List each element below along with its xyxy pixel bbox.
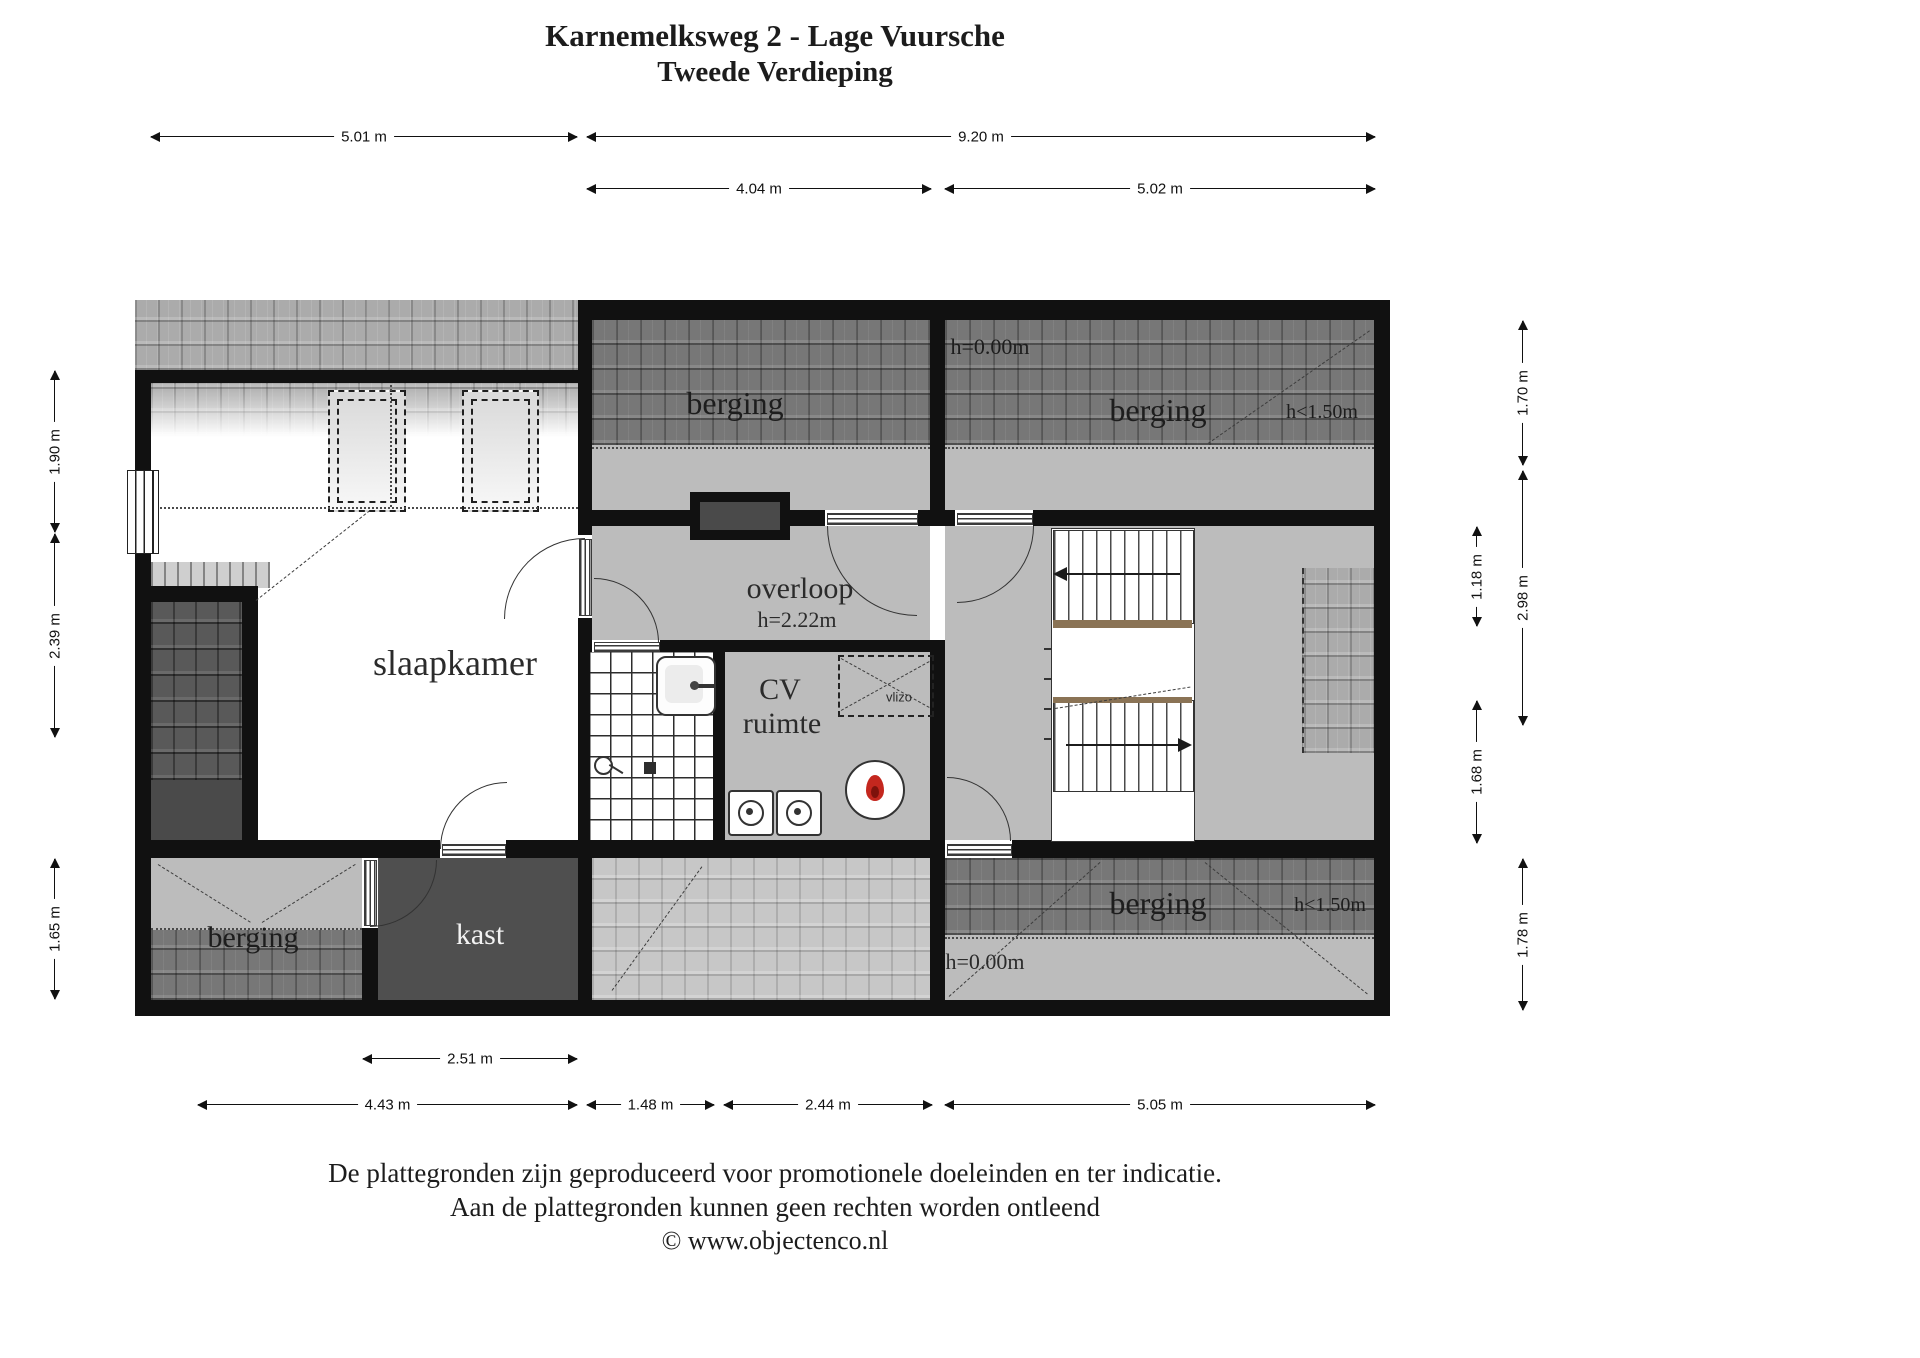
floor-berging-top-right xyxy=(945,445,1374,510)
door-leaf xyxy=(594,642,660,652)
arrow-right-icon xyxy=(922,184,932,194)
roofline-dash xyxy=(256,510,370,601)
guide-dotted-line xyxy=(390,385,392,507)
wall-berging-middle-east xyxy=(930,320,945,526)
dim-bottom-1-48: 1.48 m xyxy=(586,1098,715,1112)
dim-label: 5.05 m xyxy=(1130,1097,1190,1114)
roof-tiles-bottom-middle xyxy=(592,858,930,1000)
dim-right-1-18: 1.18 m xyxy=(1470,526,1484,627)
arrow-right-icon xyxy=(568,132,578,142)
tick-mark xyxy=(1044,678,1052,680)
stairs-lower-flight xyxy=(1053,700,1194,792)
dim-label: 1.90 m xyxy=(47,422,64,482)
room-label-kast: kast xyxy=(456,920,504,950)
vlizo-label: vlizo xyxy=(886,691,912,704)
dim-label: 5.02 m xyxy=(1130,181,1190,198)
door-leaf xyxy=(957,513,1033,525)
sink xyxy=(656,656,716,716)
height-annotation: h<1.50m xyxy=(1294,895,1366,915)
wall-outer-left xyxy=(135,370,151,1016)
door-leaf xyxy=(947,844,1012,856)
dim-right-1-78: 1.78 m xyxy=(1516,858,1530,1011)
page-title: Karnemelksweg 2 - Lage Vuursche xyxy=(0,18,1550,54)
floorplan-page: Karnemelksweg 2 - Lage Vuursche Tweede V… xyxy=(0,0,1920,1358)
footer-disclaimer-2: Aan de plattegronden kunnen geen rechten… xyxy=(0,1192,1550,1223)
arrow-right-icon xyxy=(1366,132,1376,142)
appliance-icon xyxy=(728,790,774,836)
room-label-cv: CV xyxy=(759,675,801,705)
roof-tiles-berging-middle xyxy=(592,320,930,445)
roof-tiles-right-patch xyxy=(1302,568,1376,753)
dim-label: 1.68 m xyxy=(1469,742,1486,802)
window xyxy=(127,470,159,554)
dim-label: 5.01 m xyxy=(334,129,394,146)
tick-mark xyxy=(1044,648,1052,650)
skylight-window xyxy=(328,390,406,512)
headroom-dotted-line xyxy=(592,447,930,449)
roof-tiles-left-eaves xyxy=(135,300,578,370)
dim-right-1-70: 1.70 m xyxy=(1516,320,1530,466)
dim-left-2-39: 2.39 m xyxy=(48,533,62,738)
wall-outer-bottom xyxy=(135,1000,1390,1016)
wall-south-row xyxy=(135,840,1390,858)
stairs-landing-edge xyxy=(1053,620,1192,628)
wall-stairwell-void-east xyxy=(242,586,258,840)
dim-bottom-2-44: 2.44 m xyxy=(723,1098,933,1112)
wall-outer-right xyxy=(1374,300,1390,1016)
dim-label: 1.70 m xyxy=(1515,363,1532,423)
headroom-dotted-line xyxy=(945,447,1374,449)
arrow-left-icon xyxy=(944,184,954,194)
dim-label: 9.20 m xyxy=(951,129,1011,146)
stairs-direction-line xyxy=(1066,573,1180,575)
footer-disclaimer-1: De plattegronden zijn geproduceerd voor … xyxy=(0,1158,1550,1189)
arrow-right-icon xyxy=(1366,184,1376,194)
dim-label: 4.43 m xyxy=(358,1097,418,1114)
footer-copyright: © www.objectenco.nl xyxy=(0,1226,1550,1256)
door-swing-arc xyxy=(440,782,507,849)
headroom-dotted-line xyxy=(945,937,1374,939)
headroom-dotted-line xyxy=(151,507,578,509)
dim-top-5-02: 5.02 m xyxy=(944,182,1376,196)
arrow-left-icon xyxy=(586,132,596,142)
tick-mark xyxy=(1044,738,1052,740)
room-height-overloop: h=2.22m xyxy=(757,609,836,631)
skylight-window xyxy=(462,390,539,512)
page-subtitle: Tweede Verdieping xyxy=(0,56,1550,89)
room-label-berging-bottom-right: berging xyxy=(1109,887,1206,919)
dim-label: 2.51 m xyxy=(440,1051,500,1068)
arrow-left-icon xyxy=(586,184,596,194)
wall-slaapkamer-north xyxy=(135,370,580,383)
dim-label: 2.39 m xyxy=(47,606,64,666)
dim-label: 1.48 m xyxy=(621,1097,681,1114)
dim-label: 2.44 m xyxy=(798,1097,858,1114)
dim-label: 1.78 m xyxy=(1515,905,1532,965)
door-swing-arc xyxy=(504,538,585,619)
dim-top-9-20: 9.20 m xyxy=(586,130,1376,144)
room-label-berging-middle: berging xyxy=(686,387,783,419)
room-label-overloop: overloop xyxy=(747,574,854,604)
dim-label: 1.65 m xyxy=(47,899,64,959)
wall-berging-bottom-right-west xyxy=(930,858,945,1000)
stairs-upper-flight xyxy=(1053,530,1194,624)
dim-top-5-01: 5.01 m xyxy=(150,130,578,144)
dim-label: 1.18 m xyxy=(1469,547,1486,607)
dim-label: 2.98 m xyxy=(1515,568,1532,628)
dim-left-1-90: 1.90 m xyxy=(48,370,62,533)
dim-label: 4.04 m xyxy=(729,181,789,198)
dim-left-1-65: 1.65 m xyxy=(48,858,62,1000)
stairs-direction-line xyxy=(1066,744,1178,746)
boiler-icon xyxy=(845,760,905,820)
dim-right-2-98: 2.98 m xyxy=(1516,470,1530,726)
height-annotation: h=0.00m xyxy=(950,336,1029,358)
dim-top-4-04: 4.04 m xyxy=(586,182,932,196)
wall-outer-top xyxy=(578,300,1390,320)
room-label-berging-bottom-left: berging xyxy=(207,923,298,953)
room-label-berging-top-right: berging xyxy=(1109,394,1206,426)
door-leaf xyxy=(827,513,918,525)
dim-right-1-68: 1.68 m xyxy=(1470,700,1484,844)
dim-bottom-5-05: 5.05 m xyxy=(944,1098,1376,1112)
stairs-arrow-right-icon xyxy=(1178,738,1192,752)
stairs-arrow-left-icon xyxy=(1053,567,1067,581)
tick-mark xyxy=(1044,708,1052,710)
stairwell-void-floor xyxy=(151,780,242,840)
room-label-cv-ruimte: ruimte xyxy=(743,709,821,739)
height-annotation: h=0.00m xyxy=(945,951,1024,973)
roof-ridge-strip xyxy=(151,562,270,588)
appliance-icon xyxy=(776,790,822,836)
room-label-slaapkamer: slaapkamer xyxy=(373,645,537,681)
arrow-left-icon xyxy=(150,132,160,142)
roof-tiles-stairwell-void xyxy=(151,602,242,780)
chimney-flue xyxy=(700,502,780,530)
height-annotation: h<1.50m xyxy=(1286,402,1358,422)
floor-drain-icon xyxy=(644,762,656,774)
dim-bottom-2-51: 2.51 m xyxy=(362,1052,578,1066)
faucet-knob-icon xyxy=(690,681,699,690)
dim-bottom-4-43: 4.43 m xyxy=(197,1098,578,1112)
